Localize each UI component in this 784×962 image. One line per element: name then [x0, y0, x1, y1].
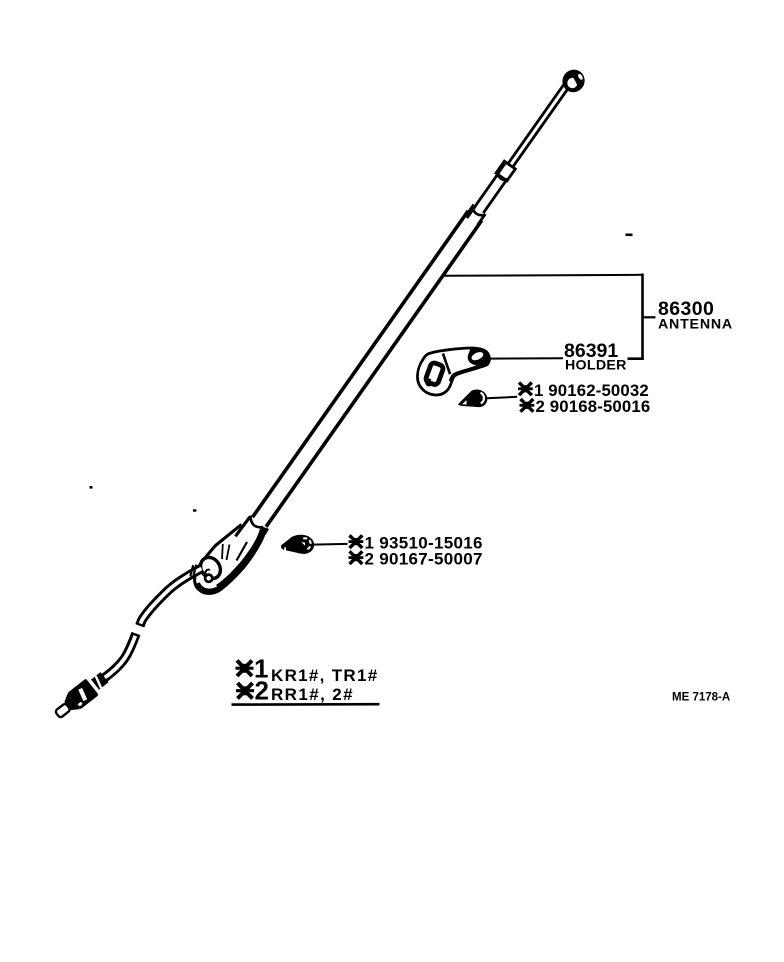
- svg-text:ANTENNA: ANTENNA: [658, 317, 733, 333]
- svg-text:2 90167-50007: 2 90167-50007: [365, 550, 483, 569]
- svg-text:2 90168-50016: 2 90168-50016: [536, 397, 651, 416]
- svg-text:KR1#, TR1#: KR1#, TR1#: [271, 666, 378, 685]
- svg-text:2: 2: [255, 676, 269, 706]
- svg-text:ME 7178-A: ME 7178-A: [672, 691, 730, 703]
- svg-text:HOLDER: HOLDER: [565, 357, 627, 373]
- svg-text:RR1#, 2#: RR1#, 2#: [271, 685, 354, 704]
